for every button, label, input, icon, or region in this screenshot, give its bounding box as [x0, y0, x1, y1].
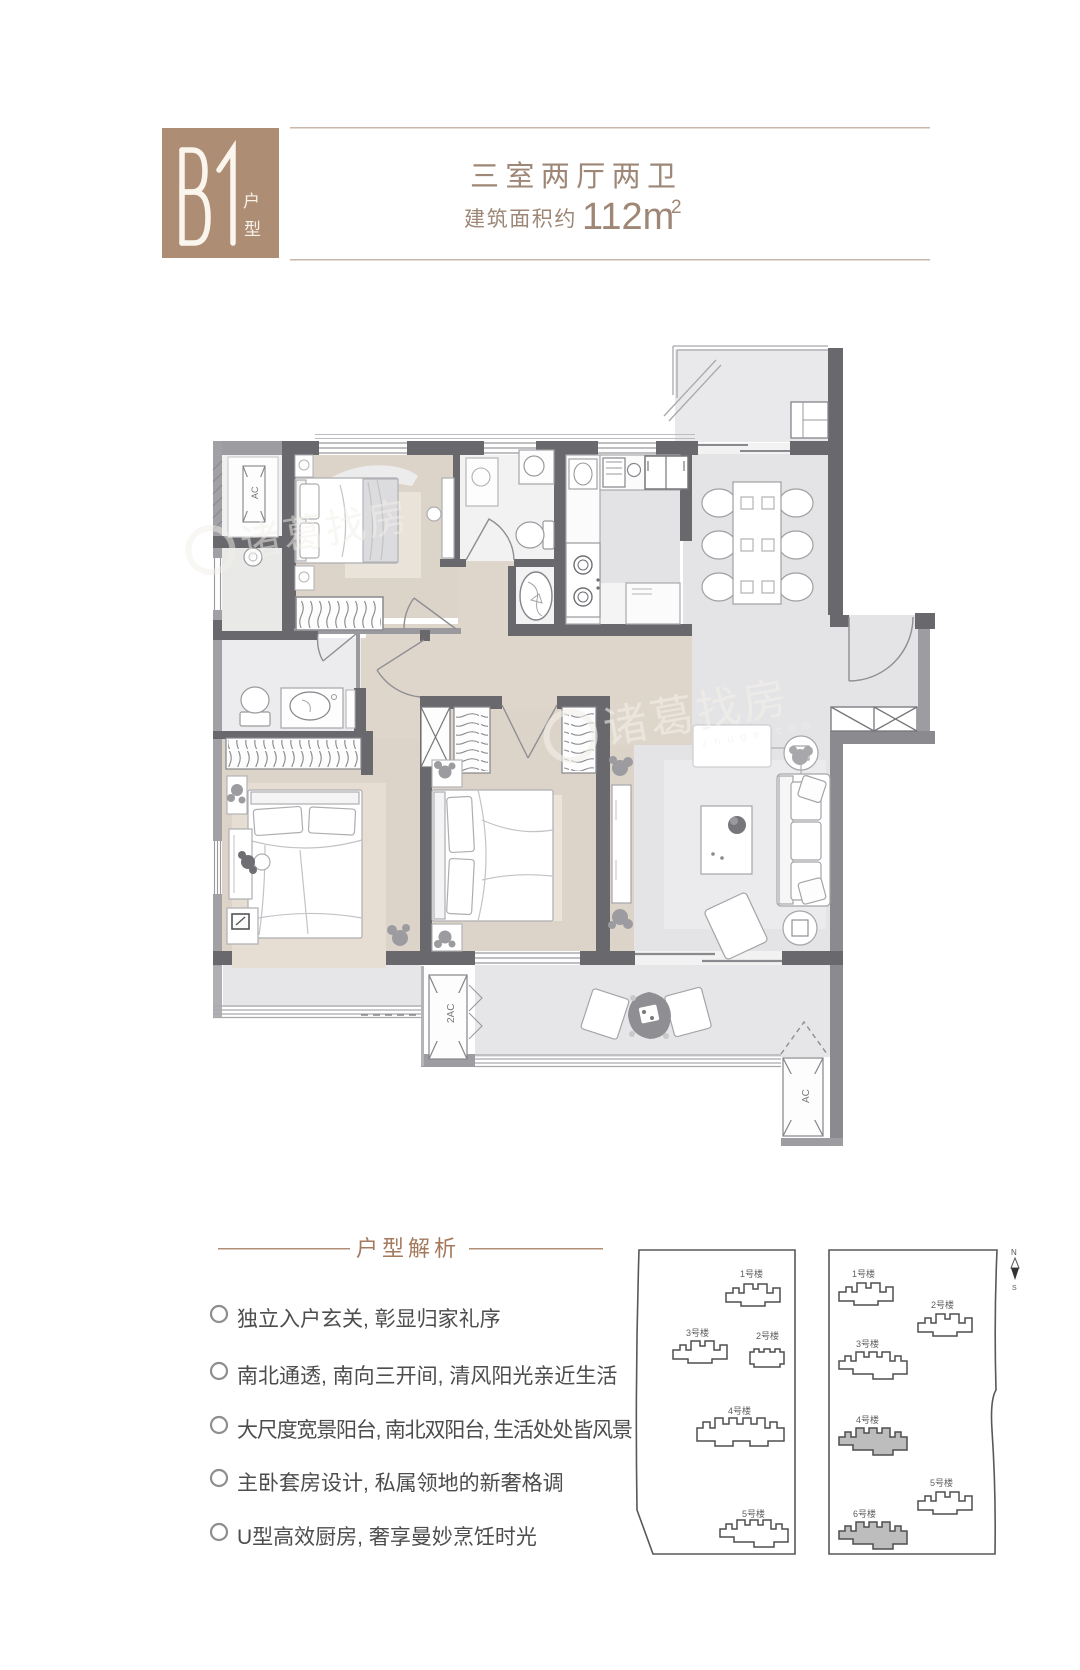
- svg-text:1号楼: 1号楼: [852, 1268, 875, 1279]
- svg-text:112m: 112m: [582, 196, 674, 238]
- svg-text:AC: AC: [250, 486, 260, 499]
- svg-text:AC: AC: [801, 1089, 812, 1103]
- svg-text:3号楼: 3号楼: [686, 1327, 709, 1338]
- svg-text:独立入户玄关, 彰显归家礼序: 独立入户玄关, 彰显归家礼序: [237, 1308, 501, 1331]
- svg-text:5号楼: 5号楼: [742, 1508, 765, 1519]
- svg-text:型: 型: [244, 220, 261, 239]
- svg-text:4号楼: 4号楼: [856, 1414, 879, 1425]
- svg-text:1号楼: 1号楼: [740, 1268, 763, 1279]
- svg-text:2号楼: 2号楼: [931, 1299, 954, 1310]
- svg-text:S: S: [1012, 1285, 1017, 1292]
- svg-text:南北通透, 南向三开间, 清风阳光亲近生活: 南北通透, 南向三开间, 清风阳光亲近生活: [237, 1365, 617, 1388]
- svg-text:6号楼: 6号楼: [853, 1508, 876, 1519]
- svg-text:三室两厅两卫: 三室两厅两卫: [470, 160, 682, 193]
- svg-text:U型高效厨房, 奢享曼妙烹饪时光: U型高效厨房, 奢享曼妙烹饪时光: [237, 1526, 537, 1549]
- svg-text:N: N: [1011, 1248, 1017, 1257]
- svg-text:2: 2: [671, 197, 682, 218]
- svg-text:建筑面积约: 建筑面积约: [464, 208, 577, 231]
- svg-text:2AC: 2AC: [446, 1004, 457, 1023]
- svg-text:户: 户: [243, 192, 260, 211]
- svg-text:大尺度宽景阳台, 南北双阳台, 生活处处皆风景: 大尺度宽景阳台, 南北双阳台, 生活处处皆风景: [237, 1419, 632, 1442]
- svg-text:户型解析: 户型解析: [356, 1236, 460, 1261]
- svg-text:4号楼: 4号楼: [728, 1405, 751, 1416]
- svg-text:2号楼: 2号楼: [756, 1330, 779, 1341]
- svg-text:5号楼: 5号楼: [930, 1477, 953, 1488]
- svg-text:主卧套房设计, 私属领地的新奢格调: 主卧套房设计, 私属领地的新奢格调: [237, 1472, 564, 1495]
- svg-text:3号楼: 3号楼: [856, 1338, 879, 1349]
